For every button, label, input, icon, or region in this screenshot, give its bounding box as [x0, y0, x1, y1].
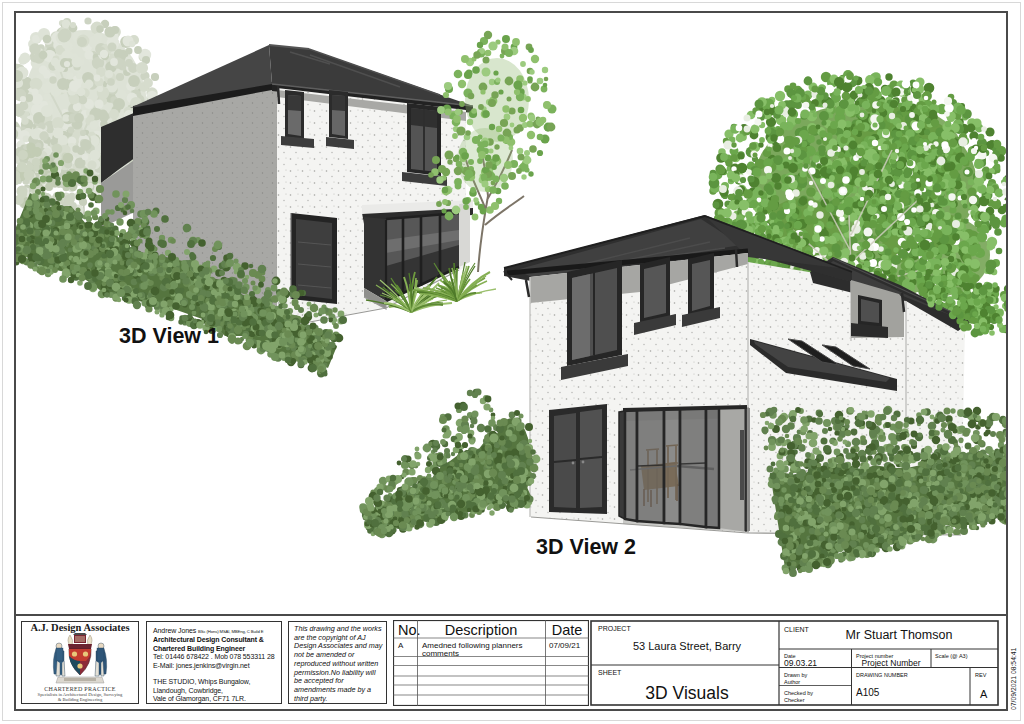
svg-text:SHEET: SHEET	[598, 669, 622, 676]
svg-text:09.03.21: 09.03.21	[784, 658, 817, 668]
svg-text:Date: Date	[552, 622, 583, 638]
svg-text:Checked by: Checked by	[784, 690, 813, 696]
svg-text:A105: A105	[856, 687, 880, 698]
svg-text:comments: comments	[422, 649, 459, 658]
svg-text:CLIENT: CLIENT	[784, 626, 810, 633]
svg-text:A: A	[398, 641, 404, 650]
svg-text:PROJECT: PROJECT	[598, 625, 631, 632]
svg-text:Checker: Checker	[784, 697, 805, 703]
svg-text:Mr Stuart Thomson: Mr Stuart Thomson	[846, 628, 953, 642]
svg-text:53 Laura Street, Barry: 53 Laura Street, Barry	[633, 640, 742, 652]
svg-text:REV: REV	[975, 672, 987, 678]
svg-text:DRAWING NUMBER: DRAWING NUMBER	[856, 672, 908, 678]
svg-text:Project Number: Project Number	[861, 658, 920, 668]
svg-text:Scale (@ A3): Scale (@ A3)	[935, 653, 968, 659]
svg-text:A: A	[980, 688, 988, 700]
svg-text:07/09/21: 07/09/21	[549, 641, 581, 650]
svg-text:3D Visuals: 3D Visuals	[645, 683, 729, 703]
svg-text:Description: Description	[445, 622, 518, 638]
svg-text:Author: Author	[784, 679, 800, 685]
svg-text:Drawn by: Drawn by	[784, 672, 807, 678]
svg-text:No.: No.	[398, 622, 421, 638]
